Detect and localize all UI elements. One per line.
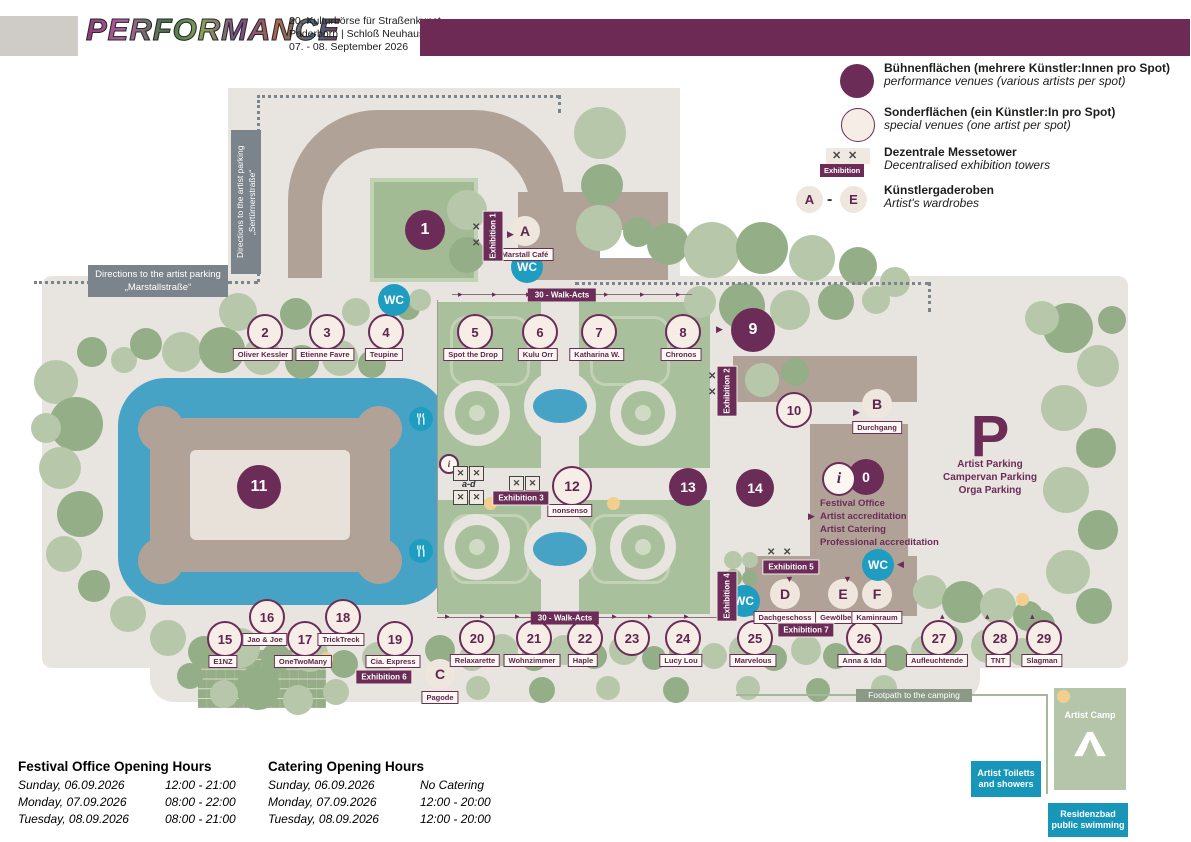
tree [663, 677, 689, 703]
route-arrow: ▶ [853, 408, 860, 417]
route-arrow: ▸ [676, 290, 681, 299]
venue-label-3: Etienne Favre [295, 348, 354, 361]
venue-label-5: Spot the Drop [443, 348, 503, 361]
venue-spot-16: 16 [249, 599, 285, 635]
tree [210, 680, 238, 708]
tree [162, 332, 202, 372]
exhibition-tower-icon: ✕ [472, 239, 480, 249]
route-arrow: ▴ [1030, 612, 1035, 621]
venue-spot-24: 24 [665, 620, 701, 656]
venue-label-16: Jao & Joe [242, 633, 287, 646]
route-arrow: ▸ [612, 612, 617, 621]
route-arrow: ▶ [716, 325, 723, 334]
venue-spot-1: 1 [405, 210, 445, 250]
exhibition-tower-icon: ✕ [509, 476, 524, 491]
fountain-basin [533, 389, 587, 423]
legend-item: Bühnenflächen (mehrere Künstler:Innen pr… [792, 62, 1188, 88]
hours-time: 12:00 - 21:00 [165, 777, 236, 794]
wardrobe-label-C: Pagode [421, 691, 458, 704]
venue-spot-9: 9 [731, 308, 775, 352]
tree [110, 596, 146, 632]
parking-line: Orga Parking [925, 484, 1055, 497]
venue-spot-5: 5 [457, 314, 493, 350]
hours-time: 08:00 - 22:00 [165, 794, 236, 811]
tree [31, 413, 61, 443]
venue-label-22: Haple [568, 654, 598, 667]
tree [1077, 345, 1119, 387]
venue-spot-18: 18 [325, 599, 361, 635]
dotted-route [34, 281, 90, 284]
venue-spot-23: 23 [614, 620, 650, 656]
castle-tower [356, 406, 402, 452]
tent-icon [1054, 730, 1126, 763]
parking-line: Artist Parking [925, 458, 1055, 471]
exhibition-badge: Exhibition 3 [493, 492, 548, 505]
wardrobe-spot-A: A [510, 216, 540, 246]
venue-spot-4: 4 [368, 314, 404, 350]
tree [781, 358, 809, 386]
route-arrow: ▸ [458, 290, 463, 299]
festival-office-text: Festival OfficeArtist accreditationArtis… [820, 497, 950, 549]
venue-label-12: nonsenso [547, 504, 592, 517]
exhibition-badge: Exhibition 2 [718, 366, 737, 415]
venue-label-26: Anna & Ida [837, 654, 886, 667]
tree [1046, 550, 1090, 594]
exhibition-badge: Exhibition 7 [778, 624, 833, 637]
tree [742, 570, 758, 586]
legend-item-subtitle: Decentralised exhibition towers [884, 159, 1188, 172]
route-arrow: ▸ [648, 612, 653, 621]
rosette-center [469, 405, 485, 421]
hours-time: 08:00 - 21:00 [165, 811, 236, 828]
walk-act-route [437, 300, 438, 612]
tree [342, 298, 370, 326]
tree [724, 551, 742, 569]
wc-spot: WC [862, 549, 894, 581]
lamp-dot [1057, 690, 1070, 703]
legend-item: Sonderflächen (ein Künstler:In pro Spot)… [792, 106, 1188, 132]
hours-day: Monday, 07.09.2026 [268, 795, 377, 809]
route-arrow: ▸ [445, 612, 450, 621]
exhibition-tower-icon: ✕ [453, 490, 468, 505]
festival-office-line: Artist accreditation [820, 510, 950, 523]
exhibition-badge: Exhibition 6 [356, 671, 411, 684]
legend-item: ✕✕ExhibitionDezentrale MessetowerDecentr… [792, 146, 1188, 172]
exhibition-tower-icon: ✕ [783, 548, 791, 558]
tree [736, 676, 760, 700]
tree [177, 663, 203, 689]
artist-camp-area: Artist Camp [1054, 688, 1126, 790]
rosette-center [635, 539, 651, 555]
directions-marstallstrasse-label: Directions to the artist parking „Marsta… [88, 265, 228, 297]
venue-label-2: Oliver Kessler [233, 348, 293, 361]
tree [1076, 588, 1112, 624]
venue-spot-12: 12 [552, 466, 592, 506]
tree [150, 620, 186, 656]
hours-day: Tuesday, 08.09.2026 [268, 812, 379, 826]
hours-row: Monday, 07.09.202608:00 - 22:00 [18, 794, 275, 811]
header-line-1: 20. Kulturbörse für Straßenkunst [289, 15, 441, 28]
wc-spot: WC [378, 284, 410, 316]
castle-tower [138, 406, 184, 452]
wardrobe-label-D: Dachgeschoss [754, 611, 817, 624]
hours-row: Sunday, 06.09.202612:00 - 21:00 [18, 777, 275, 794]
venue-spot-8: 8 [665, 314, 701, 350]
venue-label-20: Relaxarette [450, 654, 500, 667]
exhibition-tower-icon: ✕ [472, 223, 480, 233]
artist-camp-label: Artist Camp [1054, 710, 1126, 720]
tree [574, 107, 626, 159]
legend-item-subtitle: performance venues (various artists per … [884, 75, 1188, 88]
venue-label-15: E1NZ [208, 655, 237, 668]
catering-hours-rows: Sunday, 06.09.2026No CateringMonday, 07.… [268, 777, 530, 828]
tree [701, 643, 727, 669]
tree [330, 650, 358, 678]
catering-hours-title: Catering Opening Hours [268, 759, 424, 774]
tree [323, 679, 349, 705]
directions-line-2: „Marstallstraße“ [88, 281, 228, 294]
legend-wardrobe-icon: A-E [796, 186, 876, 214]
tree [684, 222, 740, 278]
tree [1041, 385, 1087, 431]
tree [1076, 428, 1116, 468]
venue-spot-13: 13 [669, 468, 707, 506]
route-arrow: ◀ [897, 560, 904, 569]
tree [77, 337, 107, 367]
route-arrow: ▴ [940, 612, 945, 621]
route-arrow: ▸ [515, 612, 520, 621]
tree [576, 205, 622, 251]
venue-label-24: Lucy Lou [659, 654, 702, 667]
festival-map-page: PERFORMANCE 20. Kulturbörse für Straßenk… [0, 0, 1191, 842]
tree [770, 290, 810, 330]
parking-line: Campervan Parking [925, 471, 1055, 484]
header-subtitle: 20. Kulturbörse für Straßenkunst Paderbo… [289, 15, 441, 54]
tree [1078, 510, 1118, 550]
header-gray-block [0, 16, 78, 56]
route-arrow: ▸ [604, 290, 609, 299]
venue-label-28: TNT [986, 654, 1011, 667]
exhibition-badge: Exhibition 5 [763, 561, 818, 574]
hours-row: Sunday, 06.09.2026No Catering [268, 777, 530, 794]
dotted-route [228, 281, 258, 284]
header-purple-bar [420, 19, 1190, 56]
tree [862, 286, 890, 314]
dotted-route [257, 95, 559, 98]
public-swimming-badge: Residenzbad public swimming [1048, 803, 1128, 837]
header-line-3: 07. - 08. September 2026 [289, 41, 441, 54]
venue-label-6: Kulu Orr [518, 348, 558, 361]
tower-group-label: a-d [462, 479, 476, 489]
festival-office-line: Festival Office [820, 497, 950, 510]
route-arrow: ▴ [985, 612, 990, 621]
exhibition-tower-icon: ✕ [525, 476, 540, 491]
dotted-route [575, 282, 929, 285]
tree [283, 685, 313, 715]
rosette-center [469, 539, 485, 555]
route-arrow: ▸ [640, 290, 645, 299]
tree [942, 581, 984, 623]
walk-acts-badge: 30 - Walk-Acts [528, 289, 596, 302]
hours-day: Monday, 07.09.2026 [18, 795, 127, 809]
venue-spot-14: 14 [736, 469, 774, 507]
tree [596, 676, 620, 700]
venue-spot-15: 15 [207, 621, 243, 657]
route-arrow: ▸ [684, 612, 689, 621]
tree [447, 190, 487, 230]
wardrobe-spot-F: F [862, 579, 892, 609]
legend-item-subtitle: special venues (one artist per spot) [884, 119, 1188, 132]
festival-office-hours-title: Festival Office Opening Hours [18, 759, 212, 774]
venue-spot-7: 7 [581, 314, 617, 350]
route-arrow: ▼ [843, 575, 852, 584]
fountain-basin [533, 532, 587, 566]
hours-row: Tuesday, 08.09.202608:00 - 21:00 [18, 811, 275, 828]
tree [529, 677, 555, 703]
catering-utensils-icon [409, 407, 433, 431]
rosette-center [635, 405, 651, 421]
exhibition-badge: Exhibition 1 [484, 211, 503, 260]
route-arrow: ▼ [785, 575, 794, 584]
route-arrow: ▸ [480, 612, 485, 621]
tree [46, 536, 82, 572]
tree [647, 223, 689, 265]
tree [736, 222, 788, 274]
walk-acts-badge: 30 - Walk-Acts [531, 612, 599, 625]
tree [39, 447, 81, 489]
directions-line-1: Directions to the artist parking [88, 268, 228, 281]
venue-label-29: Slagman [1021, 654, 1062, 667]
wardrobe-label-B: Durchgang [852, 421, 902, 434]
venue-label-17: OneTwoMany [274, 655, 332, 668]
venue-spot-28: 28 [982, 620, 1018, 656]
catering-utensils-icon [409, 539, 433, 563]
tree [791, 635, 821, 665]
wardrobe-label-F: Kaminraum [851, 611, 902, 624]
hours-time: No Catering [420, 777, 484, 794]
wardrobe-label-A: Marstall Café [497, 248, 554, 261]
exhibition-tower-icon: ✕ [708, 388, 716, 398]
tree [581, 164, 623, 206]
artist-toilets-badge: Artist Toiletts and showers [971, 761, 1041, 797]
info-point: i [822, 462, 856, 496]
hours-day: Sunday, 06.09.2026 [18, 778, 125, 792]
venue-spot-10: 10 [776, 392, 812, 428]
lamp-dot [1016, 593, 1029, 606]
hours-row: Tuesday, 08.09.202612:00 - 20:00 [268, 811, 530, 828]
tree [1098, 306, 1126, 334]
venue-spot-25: 25 [737, 620, 773, 656]
lamp-dot [607, 497, 620, 510]
exhibition-tower-icon: ✕ [469, 490, 484, 505]
castle-tower [138, 538, 184, 584]
venue-spot-20: 20 [459, 620, 495, 656]
hours-row: Monday, 07.09.202612:00 - 20:00 [268, 794, 530, 811]
venue-label-7: Katharina W. [569, 348, 624, 361]
legend-exhibition-icon: ✕✕Exhibition [820, 148, 876, 178]
header-line-2: Paderborn | Schloß Neuhaus [289, 28, 441, 41]
route-arrow: ▶ [507, 230, 514, 239]
dotted-route [558, 95, 561, 113]
exhibition-tower-icon: ✕ [708, 372, 716, 382]
tree [236, 666, 280, 710]
exhibition-badge: Exhibition 4 [718, 571, 737, 620]
venue-label-8: Chronos [661, 348, 702, 361]
tree [745, 363, 779, 397]
venue-label-21: Wohnzimmer [504, 654, 561, 667]
tree [839, 247, 877, 285]
venue-label-25: Marvelous [729, 654, 776, 667]
parking-text: Artist ParkingCampervan ParkingOrga Park… [925, 458, 1055, 497]
tree [78, 570, 110, 602]
venue-spot-6: 6 [522, 314, 558, 350]
venue-spot-27: 27 [921, 620, 957, 656]
tree [57, 491, 103, 537]
legend-special-icon [841, 108, 875, 142]
festival-office-hours-rows: Sunday, 06.09.202612:00 - 21:00Monday, 0… [18, 777, 275, 828]
tree [280, 298, 312, 330]
wardrobe-spot-B: B [862, 389, 892, 419]
route-arrow: ▸ [492, 290, 497, 299]
hours-time: 12:00 - 20:00 [420, 794, 491, 811]
tree [466, 676, 490, 700]
tree [130, 328, 162, 360]
dotted-route [928, 282, 931, 312]
exhibition-tower-icon: ✕ [767, 548, 775, 558]
directions-sertuernerstrasse-label: Directions to the artist parking „Sertür… [231, 130, 261, 274]
route-arrow: ▶ [808, 512, 815, 521]
venue-label-18: TrickTreck [317, 633, 364, 646]
festival-office-line: Artist Catering [820, 523, 950, 536]
legend-item: A-EKünstlergaderobenArtist's wardrobes [792, 184, 1188, 210]
venue-label-19: Cia. Express [365, 655, 420, 668]
tree [1025, 301, 1059, 335]
legend-item-subtitle: Artist's wardrobes [884, 197, 1188, 210]
footpath-label: Footpath to the camping [856, 689, 972, 702]
hours-day: Sunday, 06.09.2026 [268, 778, 375, 792]
tree [742, 552, 758, 568]
castle-tower [356, 538, 402, 584]
venue-spot-11: 11 [237, 465, 281, 509]
tree [806, 678, 830, 702]
tree [409, 289, 431, 311]
footpath-line [1046, 694, 1048, 794]
venue-spot-2: 2 [247, 314, 283, 350]
venue-label-4: Teupine [365, 348, 403, 361]
tree [818, 284, 854, 320]
festival-office-line: Professional accreditation [820, 536, 950, 549]
hours-day: Tuesday, 08.09.2026 [18, 812, 129, 826]
venue-spot-19: 19 [377, 621, 413, 657]
venue-label-27: Aufleuchtende [906, 654, 968, 667]
hours-time: 12:00 - 20:00 [420, 811, 491, 828]
venue-spot-29: 29 [1026, 620, 1062, 656]
venue-spot-22: 22 [567, 620, 603, 656]
venue-spot-21: 21 [516, 620, 552, 656]
legend-performance-icon [840, 64, 874, 98]
tree [684, 286, 716, 318]
tree [789, 235, 835, 281]
venue-spot-26: 26 [846, 620, 882, 656]
venue-spot-3: 3 [309, 314, 345, 350]
